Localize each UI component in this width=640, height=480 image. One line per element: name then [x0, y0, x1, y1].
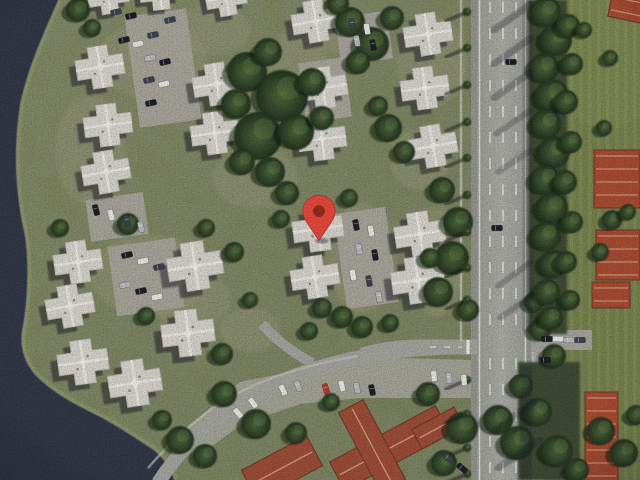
satellite-map-canvas[interactable] [0, 0, 640, 480]
map-viewport [0, 0, 640, 480]
photo-finish-layer [0, 0, 640, 480]
